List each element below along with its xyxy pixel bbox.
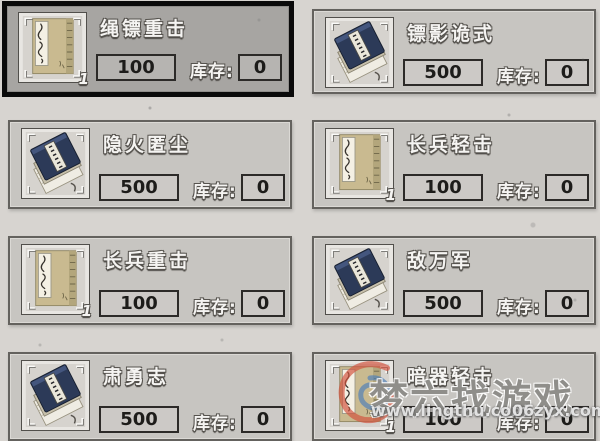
item-price-box: 100 xyxy=(96,54,176,81)
shop-item-card[interactable]: 肃勇志 500 库存: 0 xyxy=(8,352,292,441)
stock-label: 库存: xyxy=(497,177,541,202)
item-stock-box: 0 xyxy=(545,59,589,86)
shop-item-card[interactable]: 隐火匿尘 500 库存: 0 xyxy=(8,120,292,209)
item-price-box: 500 xyxy=(99,174,179,201)
item-title: 长兵重击 xyxy=(103,246,191,273)
item-title: 长兵轻击 xyxy=(407,130,495,157)
blue-book-stack-icon xyxy=(329,21,390,84)
item-count-badge: 1 xyxy=(82,302,92,320)
item-price-box: 100 xyxy=(403,174,483,201)
stock-label: 库存: xyxy=(190,57,234,82)
stock-label: 库存: xyxy=(193,293,237,318)
item-stock-box: 0 xyxy=(238,54,282,81)
item-icon-frame xyxy=(325,17,394,88)
item-stock-box: 0 xyxy=(545,290,589,317)
shop-item-card[interactable]: 1 长兵轻击 100 库存: 0 xyxy=(312,120,596,209)
stock-label: 库存: xyxy=(193,177,237,202)
item-price-box: 100 xyxy=(99,290,179,317)
shop-item-card[interactable]: 1 绳镖重击 100 库存: 0 xyxy=(2,1,294,97)
shop-item-card[interactable]: 镖影诡式 500 库存: 0 xyxy=(312,9,596,94)
item-icon-frame: 1 xyxy=(325,128,394,199)
item-icon-frame: 1 xyxy=(325,360,394,431)
item-icon-frame xyxy=(21,128,90,199)
shop-screen: { "shop": { "stock_label": "库存:", "cards… xyxy=(0,0,600,429)
blue-book-stack-icon xyxy=(329,248,390,311)
stock-label: 库存: xyxy=(497,62,541,87)
item-icon-frame xyxy=(21,360,90,431)
item-title: 绳镖重击 xyxy=(100,14,188,41)
item-count-badge: 1 xyxy=(79,70,89,88)
item-count-badge: 1 xyxy=(386,418,396,436)
tan-book-icon xyxy=(25,248,86,311)
item-stock-box: 0 xyxy=(545,174,589,201)
item-price-box: 500 xyxy=(403,290,483,317)
item-title: 暗器轻击 xyxy=(407,362,495,389)
shop-item-card[interactable]: 1 长兵重击 100 库存: 0 xyxy=(8,236,292,325)
item-icon-frame xyxy=(325,244,394,315)
item-title: 镖影诡式 xyxy=(407,19,495,46)
item-price-box: 500 xyxy=(403,59,483,86)
item-stock-box: 0 xyxy=(241,174,285,201)
stock-label: 库存: xyxy=(497,409,541,434)
tan-book-icon xyxy=(22,16,83,79)
item-stock-box: 0 xyxy=(241,290,285,317)
blue-book-stack-icon xyxy=(25,364,86,427)
blue-book-stack-icon xyxy=(25,132,86,195)
item-icon-frame: 1 xyxy=(21,244,90,315)
shop-item-card[interactable]: 敌万军 500 库存: 0 xyxy=(312,236,596,325)
stock-label: 库存: xyxy=(193,409,237,434)
tan-book-icon xyxy=(329,132,390,195)
tan-book-icon xyxy=(329,364,390,427)
item-title: 敌万军 xyxy=(407,246,473,273)
stock-label: 库存: xyxy=(497,293,541,318)
item-icon-frame: 1 xyxy=(18,12,87,83)
item-title: 肃勇志 xyxy=(103,362,169,389)
item-title: 隐火匿尘 xyxy=(103,130,191,157)
item-count-badge: 1 xyxy=(386,186,396,204)
shop-item-card[interactable]: 1 暗器轻击 100 库存: 0 xyxy=(312,352,596,441)
